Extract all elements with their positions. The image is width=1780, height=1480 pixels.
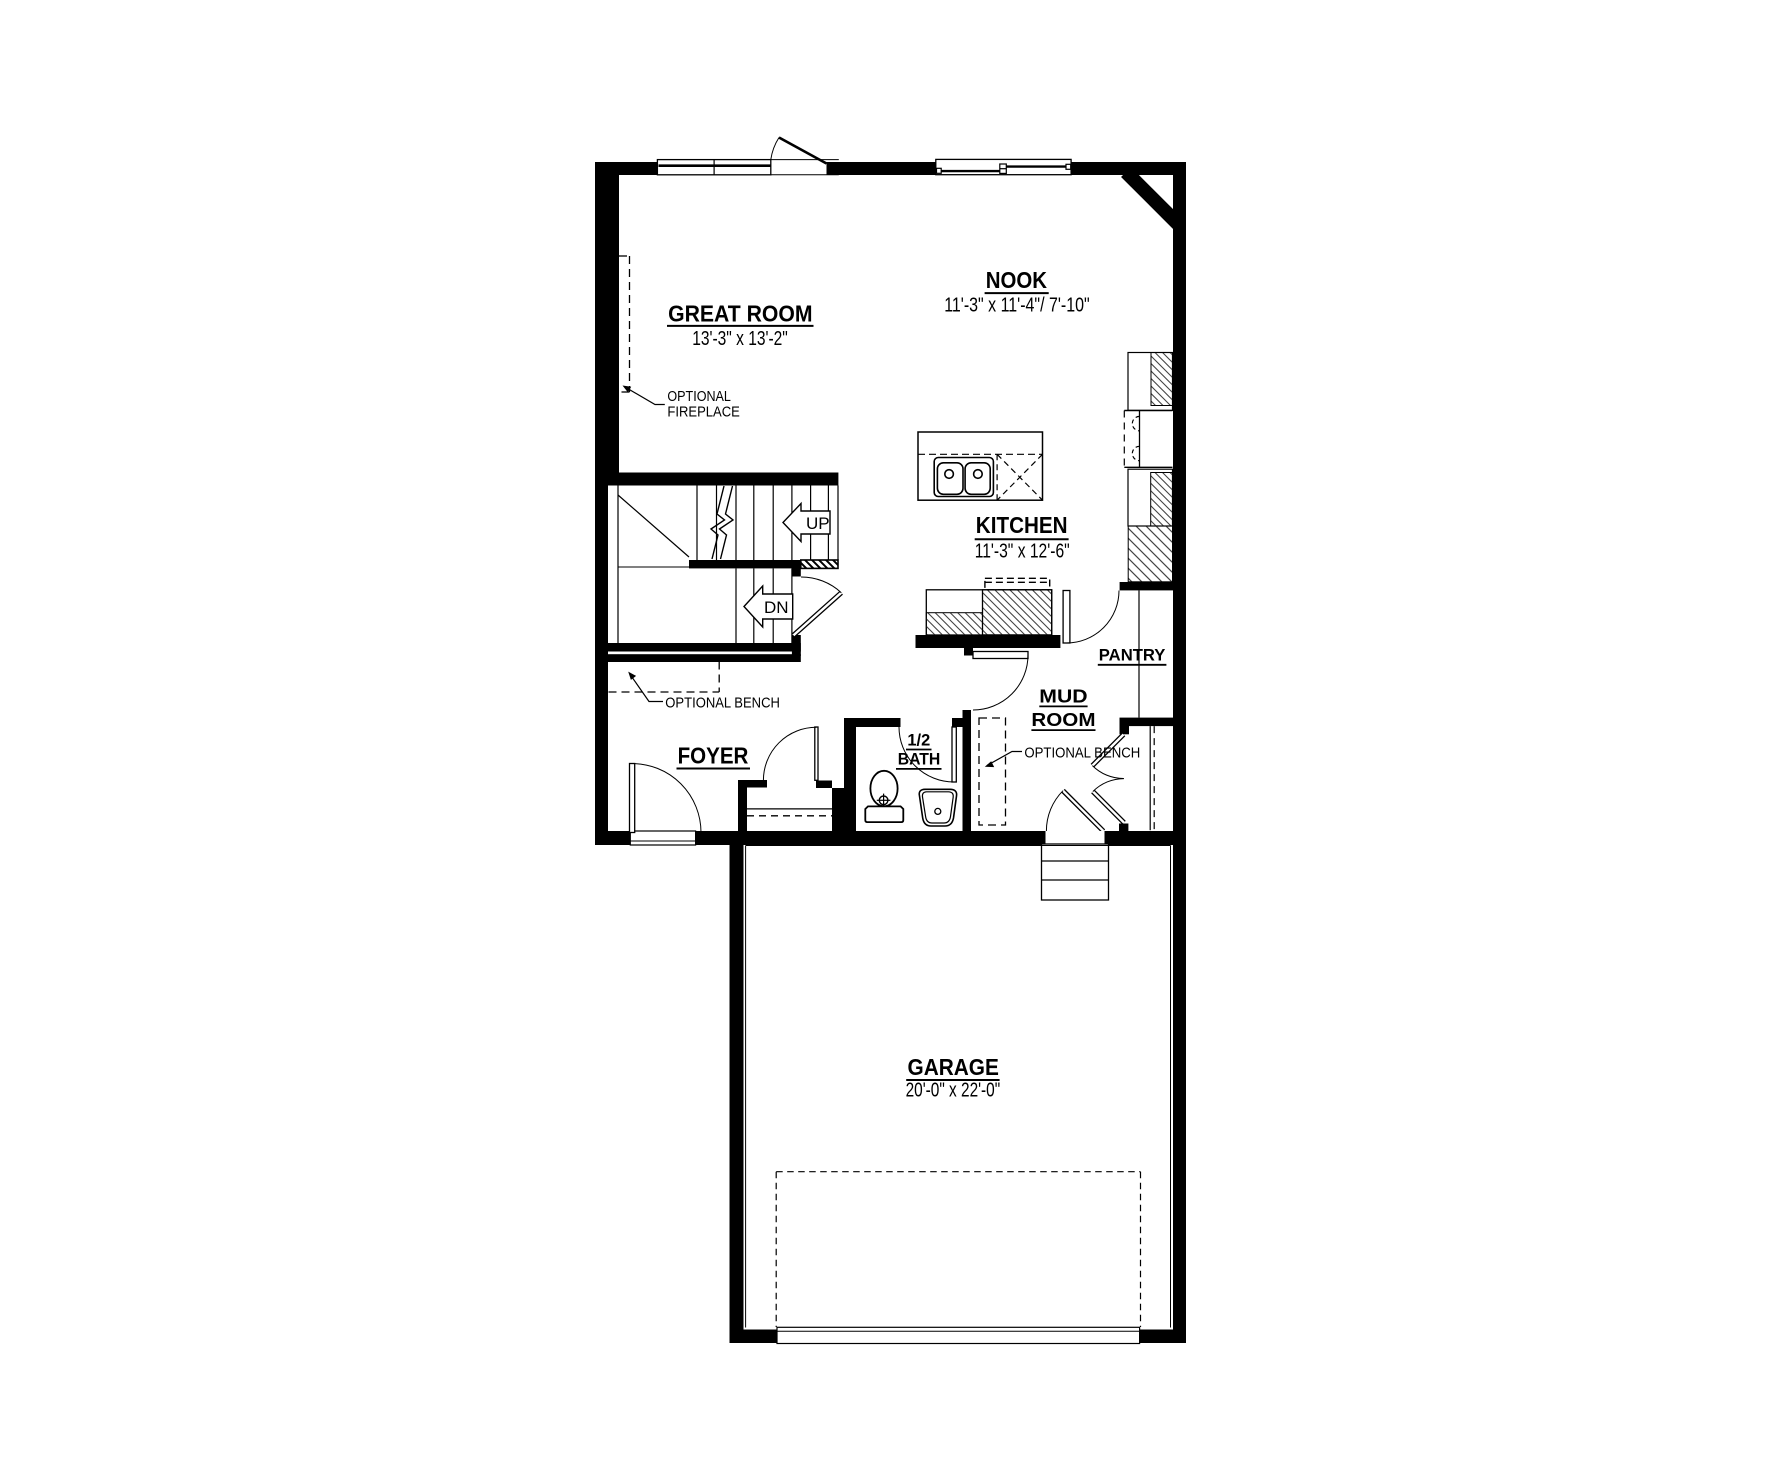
svg-text:KITCHEN: KITCHEN (976, 512, 1068, 538)
svg-text:13'-3" x 13'-2": 13'-3" x 13'-2" (692, 328, 788, 350)
svg-text:MUD: MUD (1039, 685, 1087, 706)
svg-text:1/2: 1/2 (907, 732, 930, 750)
svg-text:ROOM: ROOM (1031, 709, 1095, 730)
svg-text:OPTIONAL BENCH: OPTIONAL BENCH (1024, 745, 1140, 761)
svg-text:FIREPLACE: FIREPLACE (667, 405, 740, 421)
svg-text:20'-0" x 22'-0": 20'-0" x 22'-0" (906, 1080, 1001, 1102)
svg-text:OPTIONAL BENCH: OPTIONAL BENCH (665, 696, 780, 712)
svg-text:OPTIONAL: OPTIONAL (667, 389, 731, 405)
svg-text:FOYER: FOYER (678, 743, 749, 769)
svg-text:NOOK: NOOK (986, 267, 1048, 293)
svg-text:GREAT ROOM: GREAT ROOM (668, 301, 812, 327)
svg-text:UP: UP (806, 514, 830, 533)
svg-text:DN: DN (764, 598, 789, 617)
svg-text:GARAGE: GARAGE (908, 1054, 999, 1080)
svg-text:PANTRY: PANTRY (1099, 646, 1166, 664)
svg-text:11'-3" x 11'-4"/ 7'-10": 11'-3" x 11'-4"/ 7'-10" (944, 295, 1089, 317)
svg-text:11'-3" x 12'-6": 11'-3" x 12'-6" (975, 541, 1070, 563)
svg-text:BATH: BATH (898, 750, 941, 768)
